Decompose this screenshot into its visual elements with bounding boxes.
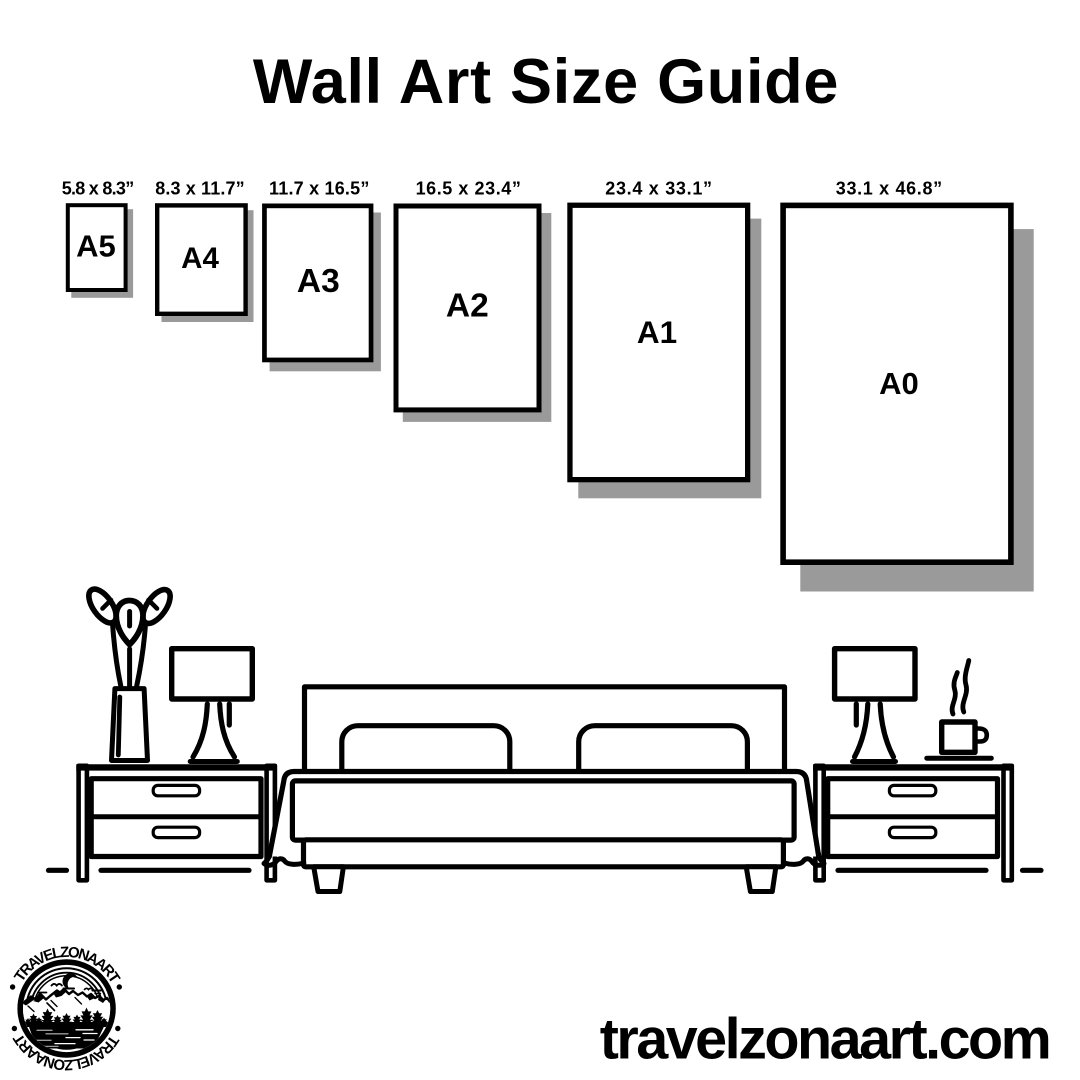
svg-text:A3: A3: [297, 263, 340, 300]
svg-text:A2: A2: [446, 287, 489, 324]
svg-text:11.7 x 16.5”: 11.7 x 16.5”: [269, 178, 370, 198]
svg-text:travelzonaart.com: travelzonaart.com: [600, 1007, 1050, 1071]
svg-text:23.4 x 33.1”: 23.4 x 33.1”: [605, 178, 712, 198]
svg-text:33.1 x 46.8”: 33.1 x 46.8”: [836, 178, 943, 198]
svg-text:A0: A0: [879, 366, 919, 401]
svg-text:8.3 x 11.7”: 8.3 x 11.7”: [155, 178, 245, 198]
svg-text:A4: A4: [181, 242, 219, 275]
svg-text:A5: A5: [76, 228, 116, 263]
svg-text:5.8 x 8.3”: 5.8 x 8.3”: [62, 178, 134, 198]
svg-text:Wall Art Size Guide: Wall Art Size Guide: [253, 47, 839, 117]
svg-text:A1: A1: [637, 314, 677, 350]
svg-text:16.5 x 23.4”: 16.5 x 23.4”: [416, 178, 522, 198]
